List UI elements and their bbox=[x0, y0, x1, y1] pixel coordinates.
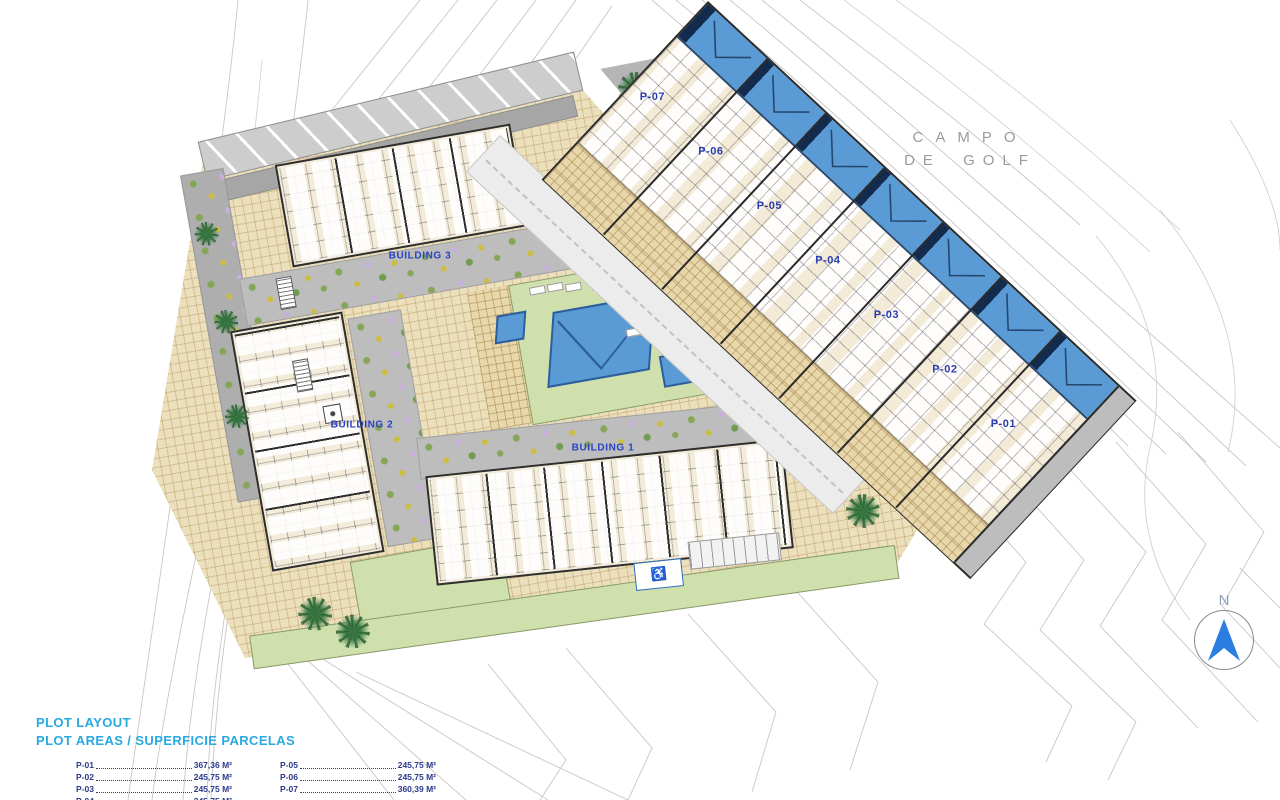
leader-dots bbox=[300, 780, 396, 781]
legend-subtitle: PLOT AREAS / SUPERFICIE PARCELAS bbox=[36, 732, 436, 750]
plot-label: P-07 bbox=[640, 91, 665, 103]
plot-area: 245,75 M² bbox=[398, 760, 436, 770]
leader-dots bbox=[300, 792, 396, 793]
plot-id: P-06 bbox=[280, 772, 298, 782]
north-label: N bbox=[1192, 592, 1256, 609]
small-pool-west bbox=[495, 311, 527, 345]
site-plan-canvas: ♿ P-07 P- bbox=[0, 0, 1280, 800]
legend-columns: P-01 367,36 M² P-02 245,75 M² P-03 245,7… bbox=[76, 758, 436, 800]
plot-label: P-04 bbox=[815, 254, 840, 266]
plot-area: 245,75 M² bbox=[398, 772, 436, 782]
plot-id: P-02 bbox=[76, 772, 94, 782]
plot-area: 245,75 M² bbox=[194, 796, 232, 800]
disabled-parking-spot: ♿ bbox=[633, 558, 684, 591]
leader-dots bbox=[96, 768, 192, 769]
legend-row: P-06 245,75 M² bbox=[280, 770, 436, 782]
legend-row: P-07 360,39 M² bbox=[280, 782, 436, 794]
legend-column-1: P-01 367,36 M² P-02 245,75 M² P-03 245,7… bbox=[76, 758, 232, 800]
building-3-label: BUILDING 3 bbox=[389, 251, 452, 262]
legend-row: P-01 367,36 M² bbox=[76, 758, 232, 770]
leader-dots bbox=[96, 792, 192, 793]
legend-column-2: P-05 245,75 M² P-06 245,75 M² P-07 360,3… bbox=[280, 758, 436, 800]
plot-id: P-03 bbox=[76, 784, 94, 794]
legend: PLOT LAYOUT PLOT AREAS / SUPERFICIE PARC… bbox=[36, 714, 436, 800]
building-2-label: BUILDING 2 bbox=[331, 420, 394, 431]
golf-course-label: CAMPO DE GOLF bbox=[880, 126, 1060, 172]
plot-area: 245,75 M² bbox=[194, 784, 232, 794]
legend-title: PLOT LAYOUT bbox=[36, 714, 436, 732]
palm-tree bbox=[846, 494, 880, 528]
plot-area: 360,39 M² bbox=[398, 784, 436, 794]
wheelchair-icon: ♿ bbox=[650, 566, 668, 584]
legend-row: P-02 245,75 M² bbox=[76, 770, 232, 782]
legend-row: P-04 245,75 M² bbox=[76, 794, 232, 800]
legend-row: P-05 245,75 M² bbox=[280, 758, 436, 770]
north-arrow-icon bbox=[1206, 617, 1242, 663]
plot-area: 367,36 M² bbox=[194, 760, 232, 770]
legend-row: P-03 245,75 M² bbox=[76, 782, 232, 794]
plot-area: 245,75 M² bbox=[194, 772, 232, 782]
golf-course-label-line2: DE GOLF bbox=[880, 149, 1060, 172]
plot-label: P-03 bbox=[874, 309, 899, 321]
building-1-label: BUILDING 1 bbox=[572, 443, 635, 454]
plot-id: P-07 bbox=[280, 784, 298, 794]
plot-label: P-01 bbox=[991, 418, 1016, 430]
compass-ring bbox=[1194, 610, 1254, 670]
plot-id: P-01 bbox=[76, 760, 94, 770]
plot-id: P-05 bbox=[280, 760, 298, 770]
golf-course-label-line1: CAMPO bbox=[880, 126, 1060, 149]
leader-dots bbox=[96, 780, 192, 781]
plot-label: P-06 bbox=[698, 145, 723, 157]
north-compass: N bbox=[1192, 592, 1256, 684]
plot-label: P-02 bbox=[932, 364, 957, 376]
leader-dots bbox=[300, 768, 396, 769]
plot-id: P-04 bbox=[76, 796, 94, 800]
plot-label: P-05 bbox=[757, 200, 782, 212]
